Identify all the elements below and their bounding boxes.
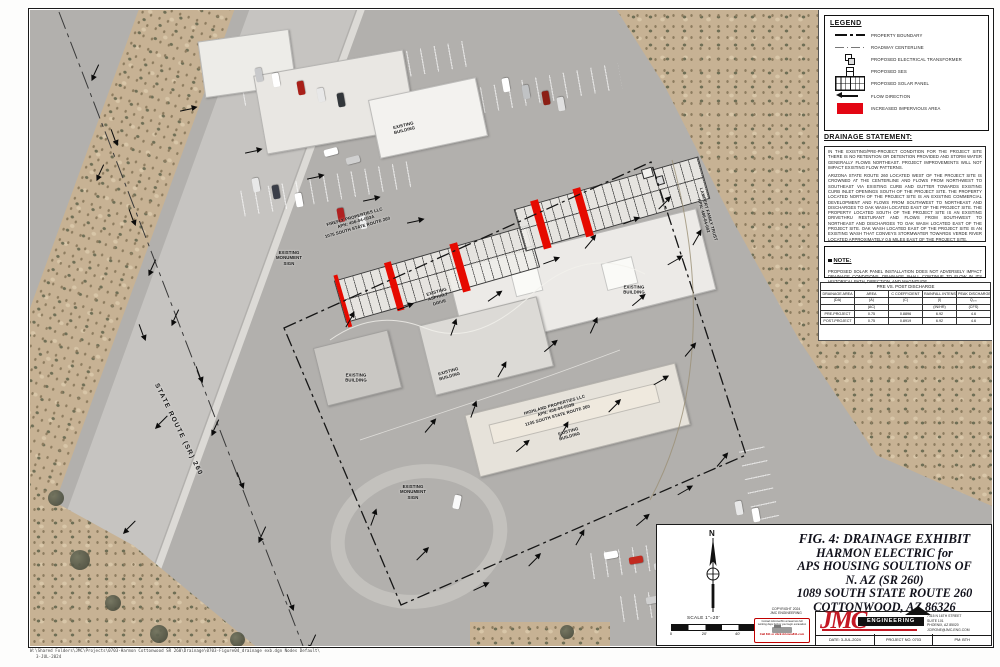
legend-item-label: PROPOSED SOLAR PANEL	[871, 81, 929, 86]
table-cell: 0.75	[855, 318, 889, 325]
table-cell: 6.92	[923, 318, 957, 325]
table-header-cell: (AC)	[855, 304, 889, 311]
table-header-cell: (C)	[889, 297, 923, 304]
legend-symbol-cell	[829, 34, 871, 36]
table-cell: 6.92	[923, 311, 957, 318]
note: NOTE: PROPOSED SOLAR PANEL INSTALLATION …	[824, 246, 986, 278]
legend-item: PROPERTY BOUNDARY	[825, 29, 988, 41]
note-title: NOTE:	[834, 258, 852, 264]
roadway-centerline-icon	[835, 47, 865, 48]
legend-symbol-cell	[829, 67, 871, 77]
table-cell: PRE-PROJECT	[821, 311, 855, 318]
title-line: FIG. 4: DRAINAGE EXHIBIT	[781, 532, 988, 547]
legend-item: ROADWAY CENTERLINE	[825, 41, 988, 53]
discharge-table-grid: DRAINAGE AREAAREAC COEFFICIENTRAINFALL I…	[820, 290, 991, 325]
scale-label: SCALE 1"=20'	[687, 615, 720, 620]
table-cell: POST-PROJECT	[821, 318, 855, 325]
table-header-cell	[821, 304, 855, 311]
file-path: W:\Shared Folders\JMC\Projects\0703-Harm…	[30, 648, 320, 654]
legend-symbol-cell	[829, 54, 871, 64]
meta-row: DATE: 3-JUL-2024 PROJECT NO. 0703 PM: BT…	[816, 634, 991, 645]
legend-item-label: INCREASED IMPERVIOUS AREA	[871, 106, 941, 111]
legend-item-label: FLOW DIRECTION	[871, 94, 910, 99]
truck-icon	[772, 627, 792, 633]
table-header-cell: DRAINAGE AREA	[821, 291, 855, 298]
logo-box: JMC ENGINEERING 7315 N 16TH STREETSUITE …	[815, 611, 991, 645]
table-header-cell: C COEFFICIENT	[889, 291, 923, 298]
note-bullet-icon	[828, 259, 832, 263]
north-arrow-icon	[663, 536, 763, 614]
legend-item-label: PROPERTY BOUNDARY	[871, 33, 923, 38]
discharge-table-title: PRE VS. POST DISCHARGE	[820, 282, 991, 290]
copyright-text: COPYRIGHT 2024 JMC ENGINEERING	[757, 607, 815, 616]
table-cell: 0.75	[855, 311, 889, 318]
transformer-icon	[845, 54, 856, 64]
legend-symbol-cell	[829, 103, 871, 114]
table-header-cell: Q₁₀₀	[957, 297, 991, 304]
map-label: HIGHLAND PROPERTIES LLC APN: 406-04-003B…	[521, 393, 590, 427]
drawing-title: FIG. 4: DRAINAGE EXHIBITHARMON ELECTRIC …	[781, 532, 988, 614]
statement-paragraph: ARIZONA STATE ROUTE 260 LOCATED WEST OF …	[828, 173, 982, 242]
legend-item: PROPOSED SES	[825, 66, 988, 78]
table-header-cell: AREA	[855, 291, 889, 298]
map-label: EXISTING MONUMENT SIGN	[276, 250, 302, 266]
map-label: EXISTING ASPHALT DRIVE	[426, 286, 450, 307]
ses-icon	[846, 67, 854, 77]
legend-item: PROPOSED ELECTRICAL TRANSFORMER	[825, 53, 988, 65]
table-cell: 0.8896	[889, 311, 923, 318]
table-header-cell: RAINFALL INTENSITY	[923, 291, 957, 298]
map-label: EXISTING MONUMENT SIGN	[400, 484, 426, 500]
address-line: JCIRONE@JMC-ENG.COM	[927, 628, 989, 633]
plot-date: 3-JUL-2024	[36, 654, 320, 660]
table-header-cell: (I)	[923, 297, 957, 304]
table-cell: 4.6	[957, 311, 991, 318]
impervious-icon	[837, 103, 863, 114]
date-cell: DATE: 3-JUL-2024	[816, 634, 875, 645]
flow-icon	[842, 95, 858, 96]
project-no-cell: PROJECT NO. 0703	[875, 634, 934, 645]
file-path-footer: W:\Shared Folders\JMC\Projects\0703-Harm…	[30, 648, 320, 660]
info-panel: LEGEND PROPERTY BOUNDARYROADWAY CENTERLI…	[818, 10, 992, 341]
title-line: APS HOUSING SOULTIONS OF	[781, 560, 988, 574]
legend-symbol-cell	[829, 47, 871, 48]
sheet-border: EXISTING BUILDINGFIREFLY PROPERTIES LLC …	[28, 8, 994, 648]
firm-address: 7315 N 16TH STREETSUITE 101PHOENIX, AZ 8…	[927, 614, 989, 632]
drawing-sheet: EXISTING BUILDINGFIREFLY PROPERTIES LLC …	[0, 0, 1000, 667]
table-header-cell: (A)	[855, 297, 889, 304]
legend-symbol-cell	[829, 95, 871, 96]
table-header-cell: (IN/HR)	[923, 304, 957, 311]
legend-title: LEGEND	[830, 20, 988, 27]
pm-cell: PM: BTH	[933, 634, 991, 645]
legend-item-label: ROADWAY CENTERLINE	[871, 45, 924, 50]
title-line: HARMON ELECTRIC for	[781, 547, 988, 561]
logo-row: JMC ENGINEERING 7315 N 16TH STREETSUITE …	[816, 612, 991, 636]
arizona811-sticker: Contact Arizona 811 at least two full wo…	[754, 618, 810, 643]
legend-items: PROPERTY BOUNDARYROADWAY CENTERLINEPROPO…	[825, 29, 988, 114]
legend-item-label: PROPOSED ELECTRICAL TRANSFORMER	[871, 57, 962, 62]
legend-item: INCREASED IMPERVIOUS AREA	[825, 102, 988, 114]
table-header-cell: (DA)	[821, 297, 855, 304]
map-label: EXISTING BUILDING	[437, 366, 461, 382]
legend-item-label: PROPOSED SES	[871, 69, 907, 74]
legend-symbol-cell	[829, 76, 871, 91]
logo-underline	[822, 629, 917, 631]
solar-panel-icon	[835, 76, 865, 91]
legend-item: PROPOSED SOLAR PANEL	[825, 78, 988, 90]
aerial-map: EXISTING BUILDINGFIREFLY PROPERTIES LLC …	[30, 10, 992, 646]
map-label: EXISTING BUILDING	[345, 373, 367, 384]
map-label: STATE ROUTE (SR) 260	[152, 382, 204, 477]
map-label: EXISTING BUILDING	[623, 285, 645, 296]
table-cell: 4.6	[957, 318, 991, 325]
map-label: EXISTING BUILDING	[557, 426, 581, 442]
scale-tick: 40'	[735, 631, 740, 636]
property-boundary-icon	[835, 34, 865, 36]
discharge-table: PRE VS. POST DISCHARGE DRAINAGE AREAAREA…	[820, 282, 991, 325]
table-header-cell	[889, 304, 923, 311]
legend: LEGEND PROPERTY BOUNDARYROADWAY CENTERLI…	[824, 15, 989, 131]
map-label: FIREFLY PROPERTIES LLC APN: 406-04-003A …	[321, 205, 390, 239]
jmc-logo: JMC ENGINEERING	[820, 608, 925, 634]
statement-paragraph: IN THE EXISTING/PRE-PROJECT CONDITION FO…	[828, 149, 982, 170]
title-block: N SCALE 1"=20' 020'40'60' FIG. 4: DRAINA…	[656, 524, 992, 646]
table-header-cell: PEAK DISCHARGE	[957, 291, 991, 298]
table-header-cell: (CFS)	[957, 304, 991, 311]
drainage-statement: IN THE EXISTING/PRE-PROJECT CONDITION FO…	[824, 146, 986, 242]
title-line: N. AZ (SR 260)	[781, 574, 988, 588]
title-line: 1089 SOUTH STATE ROUTE 260	[781, 587, 988, 601]
table-cell: 0.8919	[889, 318, 923, 325]
scale-tick: 0	[670, 631, 672, 636]
legend-item: FLOW DIRECTION	[825, 90, 988, 102]
scale-tick: 20'	[702, 631, 707, 636]
map-label: LAMPERT FAMILY TRUST APN: 406-04-002	[693, 187, 718, 243]
map-label: EXISTING BUILDING	[392, 120, 416, 136]
drainage-statement-title: DRAINAGE STATEMENT:	[824, 134, 912, 141]
